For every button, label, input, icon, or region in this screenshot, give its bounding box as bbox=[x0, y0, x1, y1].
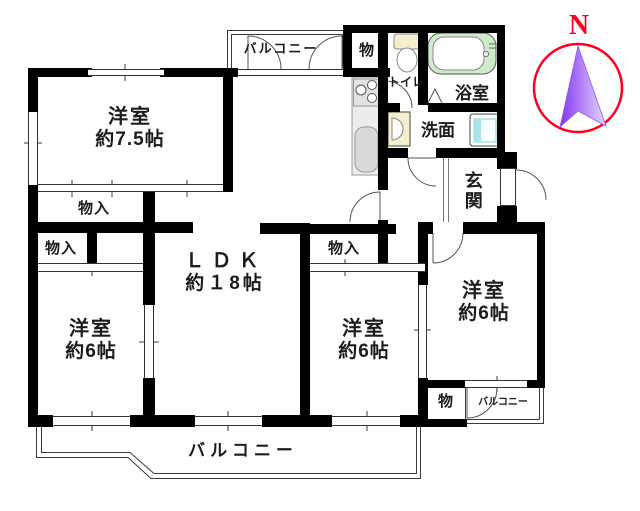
balcony-top-label: バルコニー bbox=[238, 42, 324, 57]
room-size: 約6帖 bbox=[425, 303, 543, 325]
wall-segment bbox=[418, 225, 428, 285]
wall-segment bbox=[28, 415, 53, 427]
wall-segment bbox=[378, 228, 388, 265]
window bbox=[195, 416, 262, 426]
closet-1-label: 物入 bbox=[68, 200, 120, 217]
sliding-door bbox=[310, 263, 425, 272]
wall-segment bbox=[388, 103, 400, 112]
window bbox=[88, 69, 164, 76]
entrance-label: 玄関 bbox=[462, 162, 483, 220]
wall-segment bbox=[418, 419, 467, 427]
glass-door bbox=[238, 69, 343, 76]
kitchen-counter-icon bbox=[352, 77, 380, 175]
wall-segment bbox=[527, 380, 545, 388]
entrance-door-arc bbox=[516, 170, 546, 200]
compass-north-label: N bbox=[562, 10, 596, 42]
ldk-hall-door-arc bbox=[350, 192, 380, 222]
room-size: 約7.5帖 bbox=[55, 129, 205, 151]
storage-top-label: 物 bbox=[350, 42, 384, 59]
room-name: 洋室 bbox=[305, 318, 423, 341]
room-name: 洋室 bbox=[55, 106, 205, 129]
window bbox=[465, 380, 527, 388]
wall-segment bbox=[130, 415, 195, 427]
wall-segment bbox=[28, 68, 92, 77]
washbasin-icon bbox=[388, 112, 410, 146]
balcony-right-label: バルコニー bbox=[468, 397, 538, 409]
closet-middle-label: 物入 bbox=[318, 240, 370, 257]
room-label-western-6-left: 洋室 約6帖 bbox=[31, 318, 151, 363]
entrance-door-slab bbox=[500, 168, 516, 206]
balcony-main-label: バルコニー bbox=[170, 441, 316, 461]
room-name: 洋室 bbox=[425, 280, 543, 303]
wall-segment bbox=[28, 222, 193, 233]
bathroom-label: 浴室 bbox=[440, 84, 504, 104]
wall-segment bbox=[400, 415, 421, 427]
room-size: 約１8帖 bbox=[150, 273, 300, 295]
window bbox=[53, 416, 130, 426]
window bbox=[28, 112, 38, 185]
wall-segment bbox=[436, 148, 497, 158]
compass-icon bbox=[534, 44, 622, 132]
sliding-door bbox=[38, 263, 143, 272]
wall-segment bbox=[418, 33, 428, 105]
room-label-western-6-middle: 洋室 約6帖 bbox=[305, 318, 423, 363]
sliding-door bbox=[38, 184, 223, 192]
room-label-western-7-5: 洋室 約7.5帖 bbox=[55, 106, 205, 151]
washroom-label: 洗面 bbox=[412, 121, 464, 141]
bathtub-icon bbox=[428, 33, 497, 74]
storage-right-label: 物 bbox=[428, 393, 464, 410]
right-room-door-arc bbox=[433, 233, 463, 263]
wall-segment bbox=[497, 152, 517, 169]
room-label-ldk: ＬＤＫ 約１8帖 bbox=[150, 250, 300, 295]
room-name: ＬＤＫ bbox=[150, 250, 300, 273]
toilet-label: トイレ bbox=[388, 76, 424, 90]
wall-segment bbox=[28, 77, 38, 112]
entrance-step-line bbox=[443, 158, 449, 222]
wall-segment bbox=[378, 148, 408, 158]
wall-segment bbox=[343, 25, 505, 33]
toilet-icon bbox=[394, 34, 420, 72]
closet-2-label: 物入 bbox=[36, 240, 86, 257]
room-label-western-6-right: 洋室 約6帖 bbox=[425, 280, 543, 325]
wall-segment bbox=[497, 206, 517, 223]
wall-segment bbox=[463, 222, 545, 234]
washing-machine-icon bbox=[470, 114, 500, 146]
wall-segment bbox=[262, 415, 332, 427]
wall-segment bbox=[223, 68, 233, 192]
washroom-door-arc bbox=[408, 158, 436, 186]
window bbox=[332, 416, 400, 426]
room-name: 洋室 bbox=[31, 318, 151, 341]
floor-plan: 洋室 約7.5帖 ＬＤＫ 約１8帖 洋室 約6帖 洋室 約6帖 洋室 約6帖 玄… bbox=[0, 0, 640, 511]
room-size: 約6帖 bbox=[305, 341, 423, 363]
wall-segment bbox=[428, 380, 465, 388]
room-size: 約6帖 bbox=[31, 341, 151, 363]
wall-segment bbox=[428, 103, 497, 112]
